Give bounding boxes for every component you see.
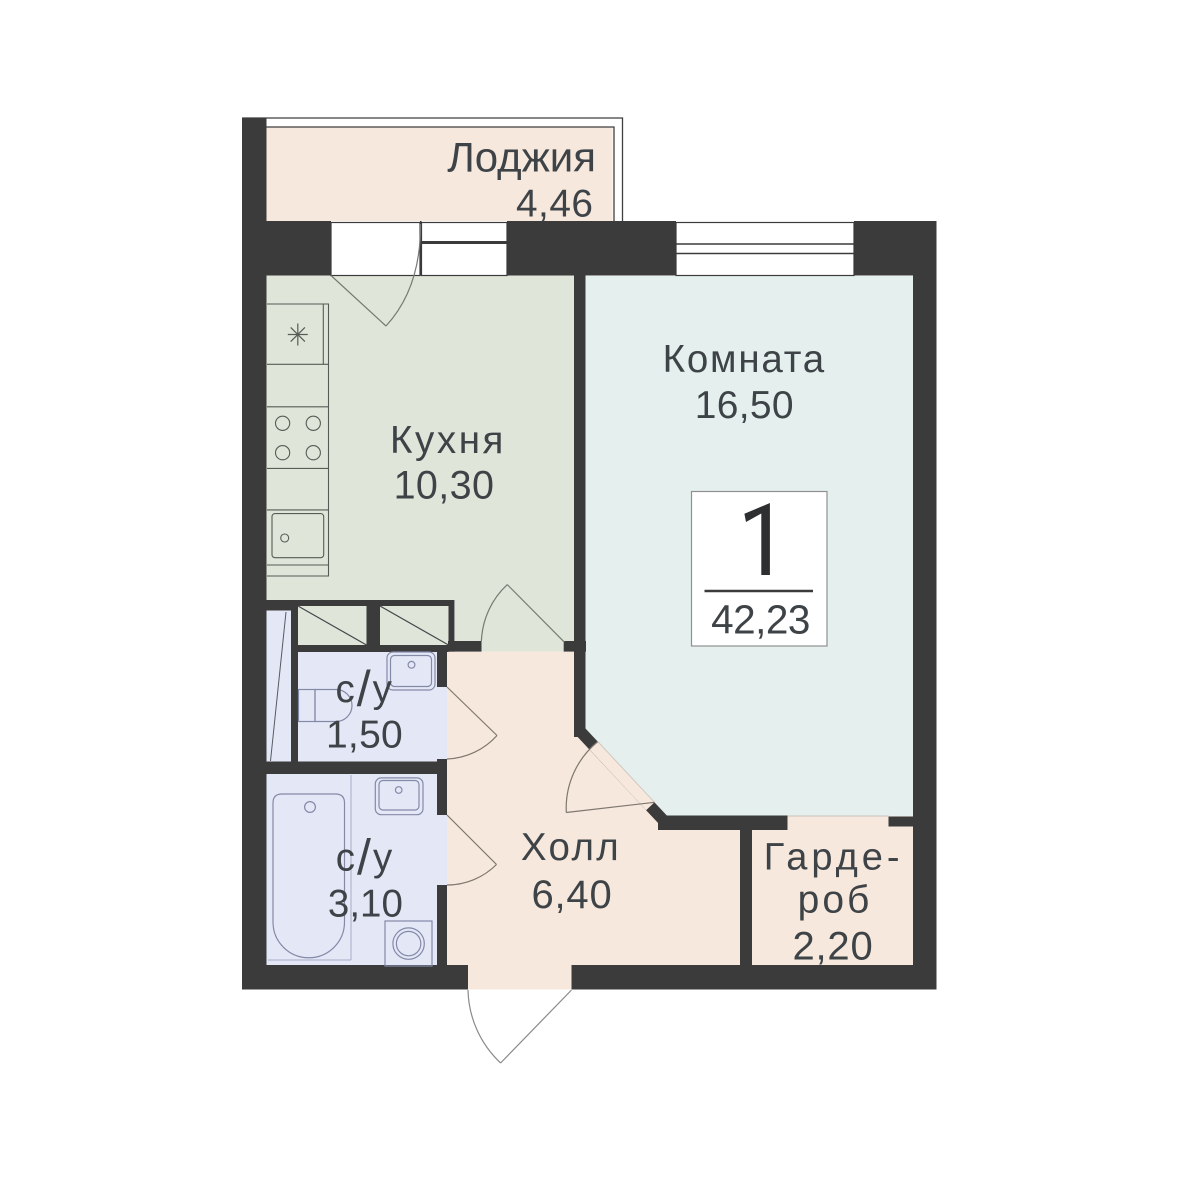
svg-text:Гарде-: Гарде- bbox=[764, 836, 904, 878]
svg-text:10,30: 10,30 bbox=[394, 464, 495, 508]
svg-text:16,50: 16,50 bbox=[695, 384, 794, 427]
svg-text:Холл: Холл bbox=[521, 826, 621, 869]
svg-text:6,40: 6,40 bbox=[531, 873, 612, 917]
svg-text:с/у: с/у bbox=[336, 830, 394, 886]
svg-text:3,10: 3,10 bbox=[328, 883, 403, 926]
svg-text:с/у: с/у bbox=[335, 661, 393, 717]
svg-text:роб: роб bbox=[798, 879, 873, 922]
svg-text:4,46: 4,46 bbox=[516, 183, 594, 226]
svg-text:Комната: Комната bbox=[663, 338, 826, 381]
svg-text:2,20: 2,20 bbox=[792, 925, 873, 969]
svg-text:42,23: 42,23 bbox=[711, 597, 810, 643]
svg-text:Лоджия: Лоджия bbox=[447, 134, 596, 181]
svg-text:1,50: 1,50 bbox=[326, 714, 403, 757]
svg-text:Кухня: Кухня bbox=[390, 419, 506, 462]
